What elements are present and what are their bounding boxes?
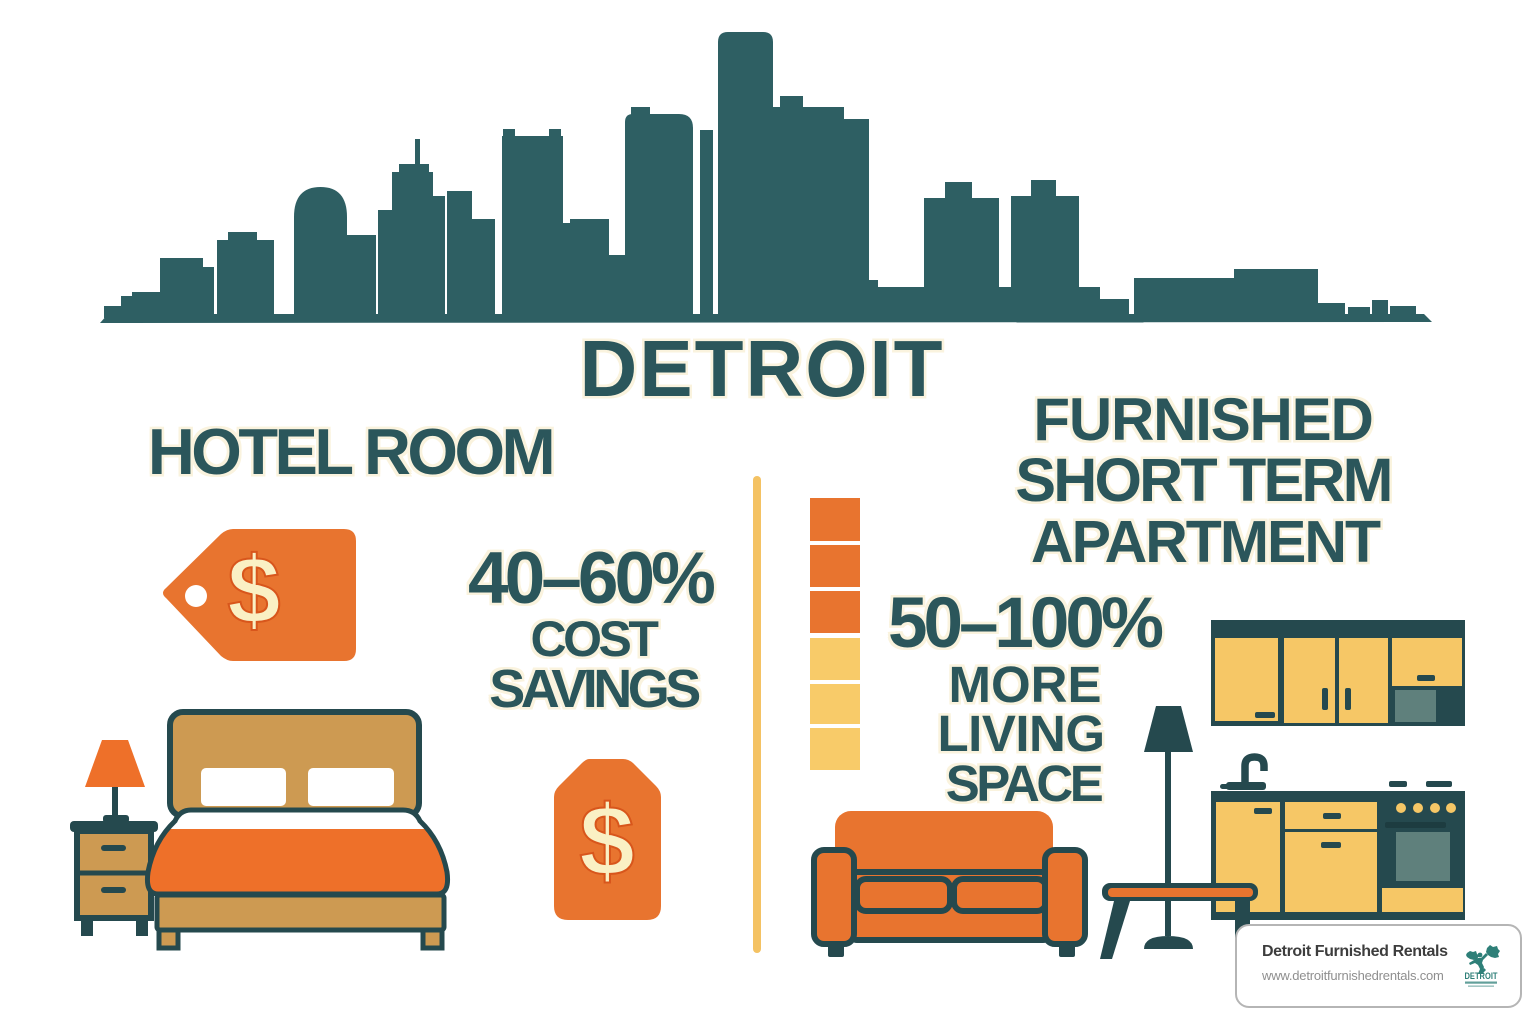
svg-text:$: $: [227, 537, 280, 644]
svg-text:$: $: [579, 785, 635, 897]
svg-text:DETROIT: DETROIT: [1465, 971, 1498, 981]
